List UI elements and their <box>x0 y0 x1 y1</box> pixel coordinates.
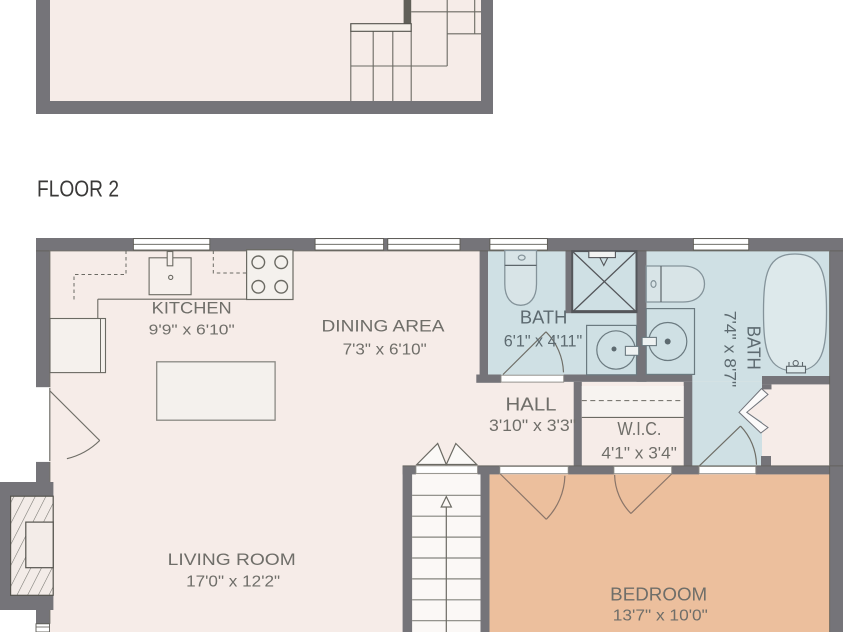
svg-text:LIVING ROOM: LIVING ROOM <box>168 550 296 569</box>
svg-text:6'1" x 4'11": 6'1" x 4'11" <box>504 331 583 350</box>
svg-text:7'4" x 8'7": 7'4" x 8'7" <box>721 311 739 388</box>
svg-text:DINING AREA: DINING AREA <box>322 317 445 335</box>
svg-text:BATH: BATH <box>520 307 568 328</box>
svg-text:BATH: BATH <box>743 326 764 370</box>
svg-text:W.I.C.: W.I.C. <box>617 418 661 439</box>
svg-text:17'0" x 12'2": 17'0" x 12'2" <box>186 573 280 590</box>
svg-text:FLOOR 2: FLOOR 2 <box>37 176 119 202</box>
svg-text:7'3" x 6'10": 7'3" x 6'10" <box>343 342 427 359</box>
svg-text:9'9" x 6'10": 9'9" x 6'10" <box>149 321 235 338</box>
svg-text:4'1" x 3'4": 4'1" x 3'4" <box>601 444 677 462</box>
svg-text:3'10" x 3'3": 3'10" x 3'3" <box>489 417 576 435</box>
svg-text:HALL: HALL <box>506 394 557 415</box>
svg-text:KITCHEN: KITCHEN <box>152 299 232 318</box>
svg-text:BEDROOM: BEDROOM <box>610 584 707 605</box>
svg-text:13'7" x 10'0": 13'7" x 10'0" <box>613 608 708 625</box>
